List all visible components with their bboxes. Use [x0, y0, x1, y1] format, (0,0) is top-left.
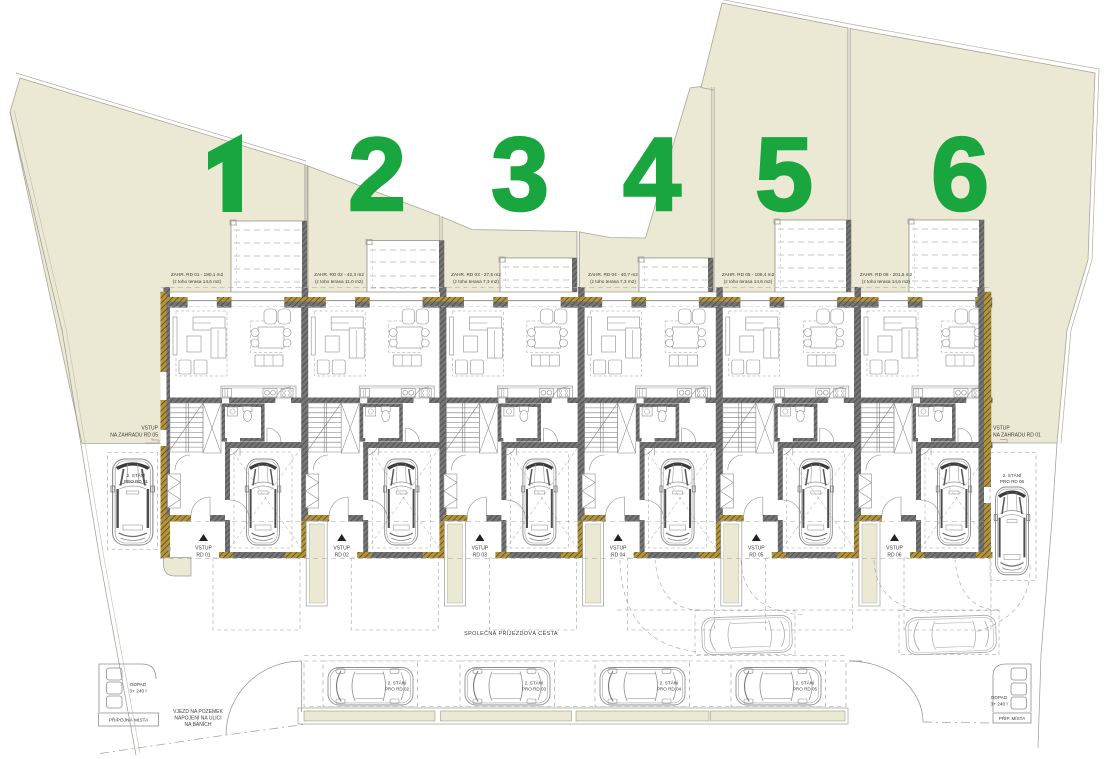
- svg-text:(z toho terasa 11,0 m2): (z toho terasa 11,0 m2): [315, 279, 364, 284]
- svg-text:PRO RD 02: PRO RD 02: [385, 687, 410, 692]
- svg-text:VSTUP: VSTUP: [610, 546, 627, 552]
- svg-text:VSTUP: VSTUP: [195, 546, 212, 552]
- svg-text:2. STÁNÍ: 2. STÁNÍ: [796, 680, 815, 686]
- svg-text:NA ZAHRADU RD 01: NA ZAHRADU RD 01: [993, 433, 1041, 439]
- svg-text:PRO RD 05: PRO RD 05: [793, 687, 818, 692]
- svg-text:2. STÁNÍ: 2. STÁNÍ: [127, 472, 146, 478]
- svg-text:PRO RD 03: PRO RD 03: [522, 687, 547, 692]
- svg-text:ZAHR. RD 04 - 40,7 m2: ZAHR. RD 04 - 40,7 m2: [588, 272, 638, 277]
- svg-text:(z toho terasa 14,6 m2): (z toho terasa 14,6 m2): [862, 279, 911, 284]
- svg-text:RD 04: RD 04: [611, 553, 625, 559]
- svg-text:ODPAD: ODPAD: [130, 682, 147, 688]
- svg-text:(z toho terasa 14,6 m2): (z toho terasa 14,6 m2): [724, 279, 773, 284]
- svg-text:2. STÁNÍ: 2. STÁNÍ: [388, 680, 407, 686]
- svg-text:(z toho terasa 7,3 m2): (z toho terasa 7,3 m2): [453, 279, 499, 284]
- svg-text:6: 6: [931, 117, 989, 233]
- svg-text:2. STÁNÍ: 2. STÁNÍ: [1003, 472, 1022, 478]
- svg-text:SPOLEČNÁ PŘÍJEZDOVÁ CESTA: SPOLEČNÁ PŘÍJEZDOVÁ CESTA: [464, 629, 558, 637]
- svg-text:RD 05: RD 05: [749, 553, 763, 559]
- svg-text:VSTUP: VSTUP: [141, 426, 158, 432]
- svg-text:VSTUP: VSTUP: [472, 546, 489, 552]
- svg-text:(z toho terasa 7,3 m2): (z toho terasa 7,3 m2): [590, 279, 636, 284]
- svg-text:RD 03: RD 03: [473, 553, 487, 559]
- svg-text:3: 3: [491, 117, 549, 233]
- svg-text:3+ 240 l: 3+ 240 l: [990, 702, 1007, 708]
- svg-text:3+ 240 l: 3+ 240 l: [129, 689, 146, 695]
- svg-text:4: 4: [623, 117, 681, 233]
- svg-text:2. STÁNÍ: 2. STÁNÍ: [660, 680, 679, 686]
- svg-text:ZAHR. RD 03 - 27,5 m2: ZAHR. RD 03 - 27,5 m2: [451, 272, 501, 277]
- svg-text:VSTUP: VSTUP: [993, 426, 1010, 432]
- svg-text:VSTUP: VSTUP: [748, 546, 765, 552]
- svg-text:VSTUP: VSTUP: [886, 546, 903, 552]
- svg-text:ZAHR. RD 06 - 201,5 m2: ZAHR. RD 06 - 201,5 m2: [860, 272, 913, 277]
- svg-text:ZAHR. RD 02 - 42,3 m2: ZAHR. RD 02 - 42,3 m2: [314, 272, 364, 277]
- svg-text:PRO RD 04: PRO RD 04: [657, 687, 682, 692]
- svg-text:2. STÁNÍ: 2. STÁNÍ: [525, 680, 544, 686]
- svg-text:ZAHR. RD 01 - 180,1 m2: ZAHR. RD 01 - 180,1 m2: [171, 272, 224, 277]
- svg-text:NA BANÍCH: NA BANÍCH: [185, 721, 212, 728]
- svg-text:ZAHR. RD 05 - 108,4 m2: ZAHR. RD 05 - 108,4 m2: [722, 272, 775, 277]
- svg-text:PRO RD 01: PRO RD 01: [124, 479, 149, 484]
- svg-text:(z toho terasa 14,6 m2): (z toho terasa 14,6 m2): [173, 279, 222, 284]
- svg-text:NA ZAHRADU RD 05: NA ZAHRADU RD 05: [110, 433, 158, 439]
- svg-text:RD 01: RD 01: [196, 553, 210, 559]
- svg-text:RD 06: RD 06: [887, 553, 901, 559]
- svg-text:VSTUP: VSTUP: [333, 546, 350, 552]
- svg-text:NAPOJENÍ NA ULICI: NAPOJENÍ NA ULICI: [174, 715, 221, 722]
- svg-text:2: 2: [348, 117, 406, 233]
- svg-text:5: 5: [755, 117, 813, 233]
- svg-text:VJEZD NA POZEMEK: VJEZD NA POZEMEK: [173, 709, 223, 715]
- svg-text:ODPAD: ODPAD: [991, 695, 1008, 701]
- svg-text:PŘÍP. MÍSTA: PŘÍP. MÍSTA: [999, 714, 1026, 721]
- svg-text:RD 02: RD 02: [335, 553, 349, 559]
- svg-text:PRO RD 06: PRO RD 06: [1000, 479, 1025, 484]
